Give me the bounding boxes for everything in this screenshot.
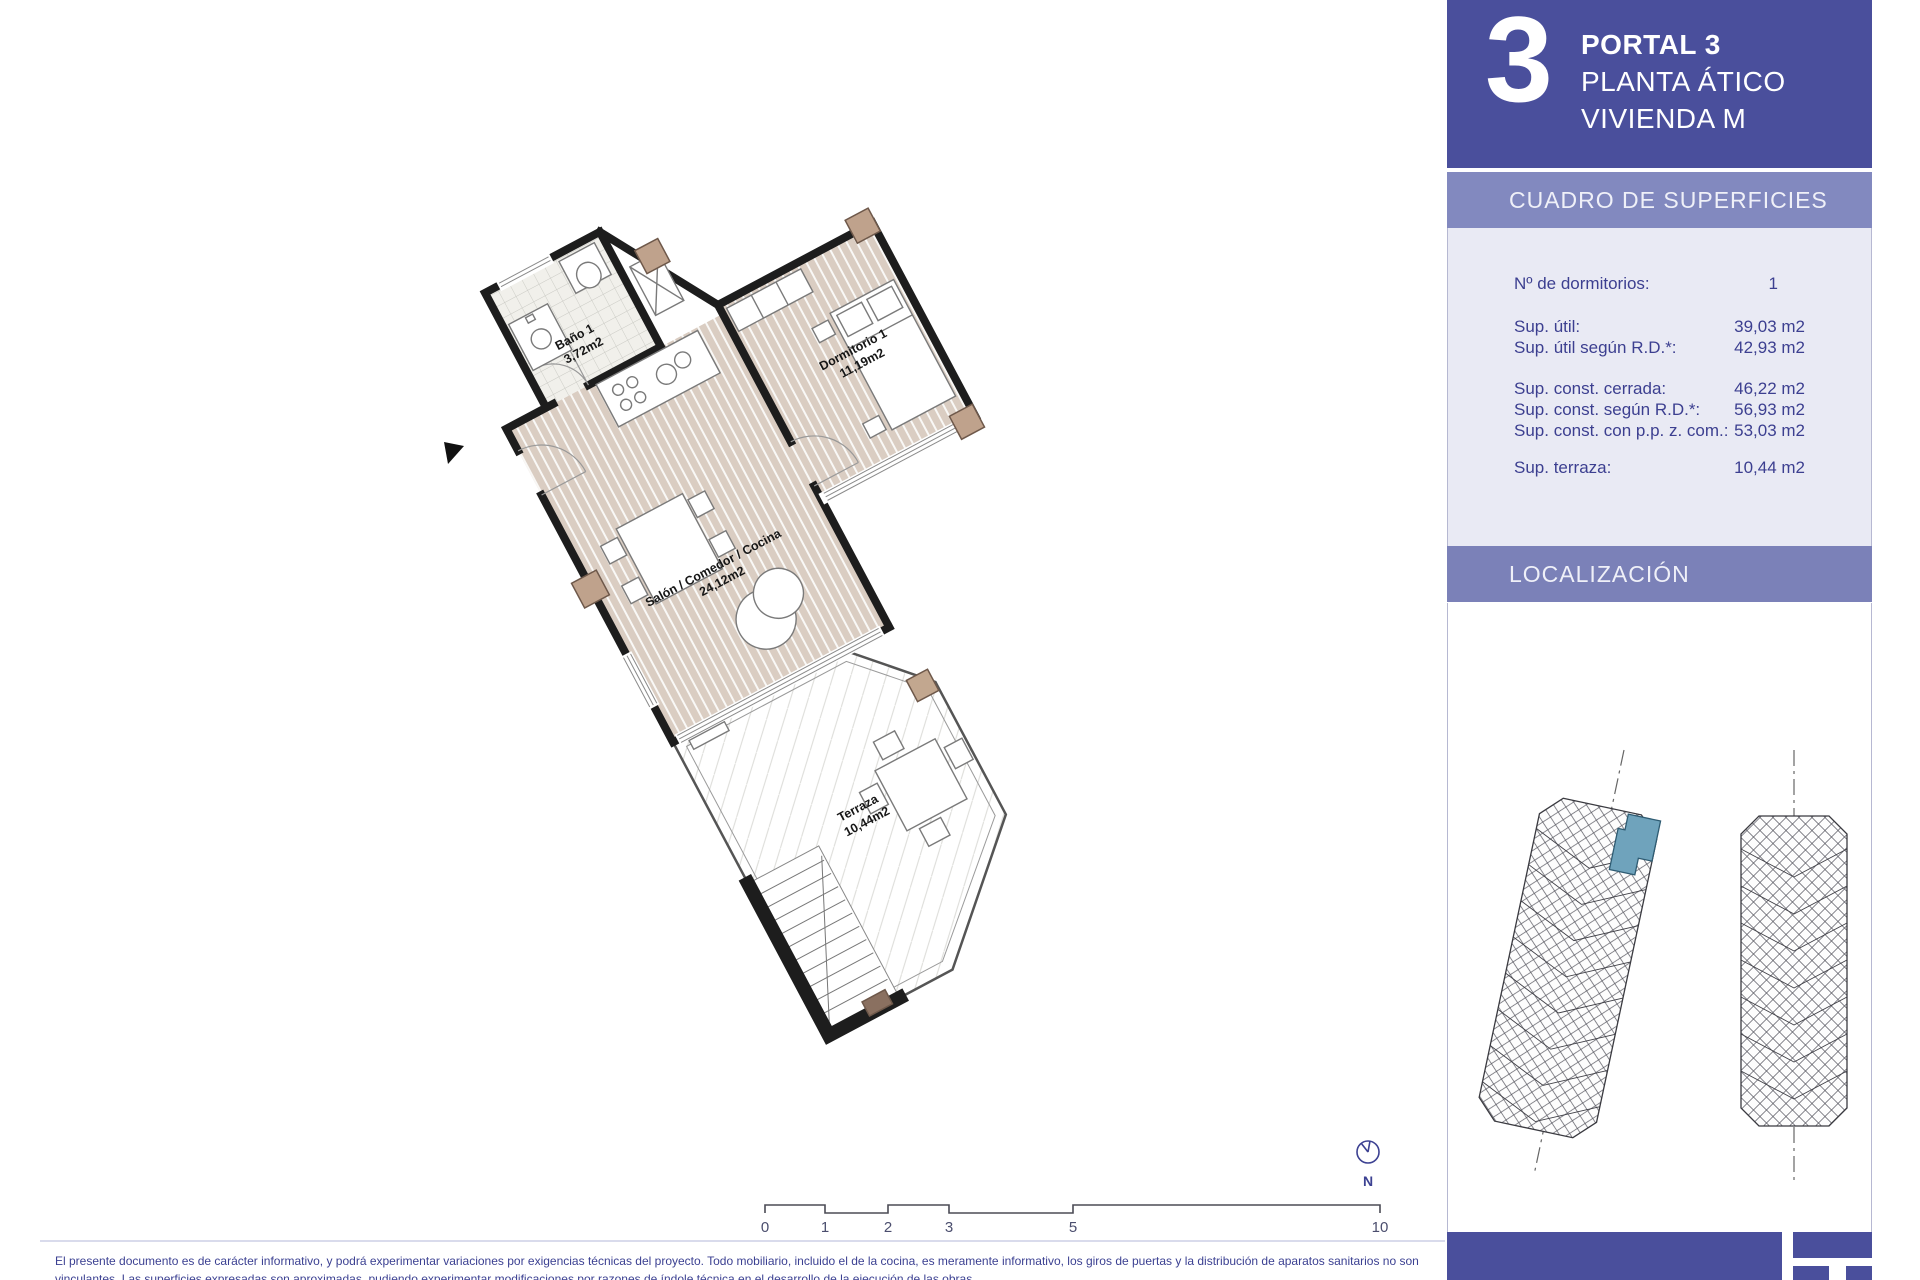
brand-logo-icon	[1793, 1232, 1872, 1258]
brand-logo-icon	[1846, 1266, 1872, 1280]
brand-logo-icon	[1793, 1266, 1829, 1280]
svg-text:1: 1	[821, 1219, 829, 1236]
portal-title: PORTAL 3	[1581, 26, 1786, 63]
plan-sheet-page: Baño 1 3,72m2 Dormitorio 1 11,19m2 Salón…	[0, 0, 1920, 1280]
table-row: Sup. útil: 39,03 m2	[1448, 317, 1871, 336]
unit-title: VIVIENDA M	[1581, 100, 1786, 137]
entrance-marker-icon	[444, 442, 464, 464]
surfaces-section-title: CUADRO DE SUPERFICIES	[1447, 172, 1872, 228]
table-row: Sup. const. según R.D.*: 56,93 m2	[1448, 400, 1871, 419]
svg-text:N: N	[1363, 1173, 1373, 1189]
svg-text:2: 2	[884, 1219, 892, 1236]
svg-text:10: 10	[1372, 1219, 1389, 1236]
portal-big-number: 3	[1485, 0, 1553, 132]
table-row: Sup. const. cerrada: 46,22 m2	[1448, 379, 1871, 398]
footer-band	[1447, 1232, 1782, 1280]
floor-title: PLANTA ÁTICO	[1581, 63, 1786, 100]
site-location-diagram	[1448, 603, 1871, 1232]
sheet-header: 3 PORTAL 3 PLANTA ÁTICO VIVIENDA M	[1447, 0, 1872, 168]
building-left	[1475, 794, 1661, 1142]
svg-text:5: 5	[1069, 1219, 1077, 1236]
north-compass-icon: N	[1344, 1124, 1392, 1196]
table-row: Sup. terraza: 10,44 m2	[1448, 458, 1871, 477]
building-right	[1741, 816, 1847, 1126]
disclaimer-text: El presente documento es de carácter inf…	[55, 1252, 1445, 1280]
localization-panel	[1447, 603, 1872, 1232]
floorplan-drawing: Baño 1 3,72m2 Dormitorio 1 11,19m2 Salón…	[330, 130, 1010, 1050]
apartment-plan-group: Baño 1 3,72m2 Dormitorio 1 11,19m2 Salón…	[429, 130, 1010, 1044]
table-row: Sup. const. con p.p. z. com.: 53,03 m2	[1448, 421, 1871, 440]
svg-text:3: 3	[945, 1219, 953, 1236]
graphic-scale-bar: 0 1 2 3 5 10	[735, 1190, 1415, 1240]
table-row: Sup. útil según R.D.*: 42,93 m2	[1448, 338, 1871, 357]
surfaces-table: Nº de dormitorios: 1 Sup. útil: 39,03 m2…	[1447, 228, 1872, 546]
divider	[40, 1240, 1445, 1242]
localization-section-title: LOCALIZACIÓN	[1447, 546, 1872, 602]
svg-text:0: 0	[761, 1219, 769, 1236]
table-row: Nº de dormitorios: 1	[1448, 274, 1871, 293]
